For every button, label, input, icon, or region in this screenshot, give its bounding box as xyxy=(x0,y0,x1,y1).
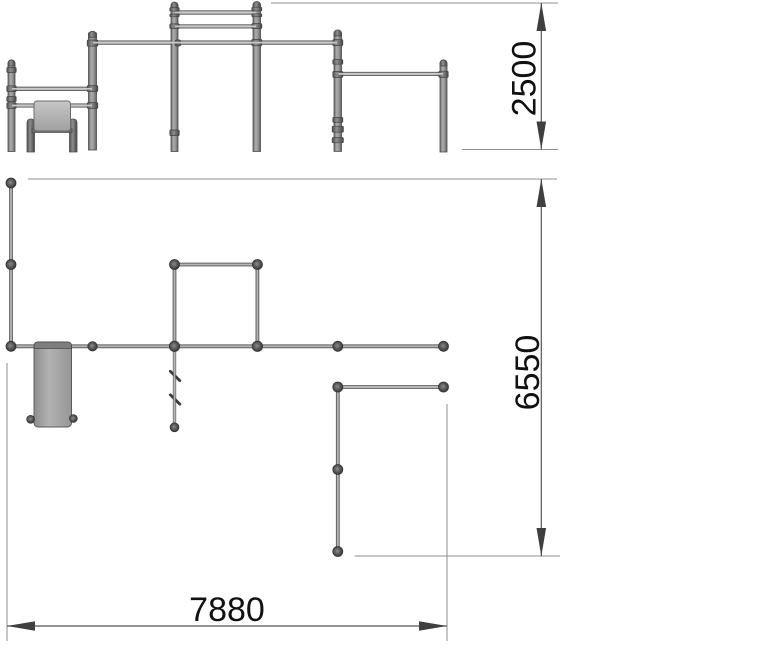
svg-text:2500: 2500 xyxy=(506,41,544,117)
svg-text:6550: 6550 xyxy=(509,335,547,411)
svg-text:7880: 7880 xyxy=(189,591,265,629)
